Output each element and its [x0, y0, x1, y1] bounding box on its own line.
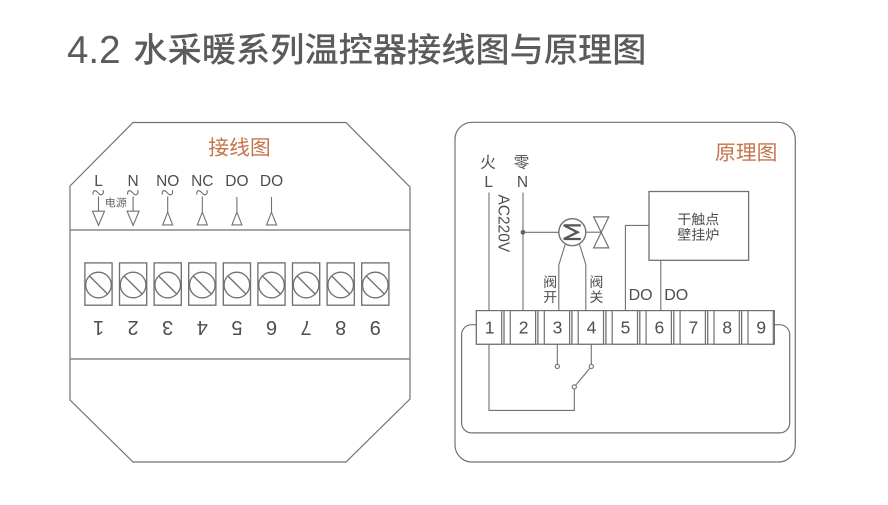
svg-text:DO: DO [664, 287, 688, 304]
svg-text:DO: DO [260, 173, 283, 190]
svg-text:N: N [517, 174, 528, 191]
svg-text:NO: NO [156, 173, 179, 190]
svg-text:8: 8 [722, 318, 732, 338]
svg-text:NC: NC [191, 173, 213, 190]
svg-text:1: 1 [485, 318, 495, 338]
svg-text:4: 4 [587, 318, 597, 338]
svg-text:8: 8 [335, 316, 346, 338]
svg-text:5: 5 [231, 316, 242, 338]
svg-text:9: 9 [370, 316, 381, 338]
svg-text:L: L [484, 174, 493, 191]
svg-text:AC220V: AC220V [494, 195, 511, 253]
svg-text:DO: DO [225, 173, 248, 190]
svg-text:DO: DO [629, 287, 653, 304]
svg-text:3: 3 [553, 318, 563, 338]
svg-text:7: 7 [301, 316, 312, 338]
svg-text:6: 6 [655, 318, 665, 338]
svg-text:2: 2 [128, 316, 139, 338]
svg-text:1: 1 [93, 316, 104, 338]
svg-text:N: N [127, 173, 138, 190]
svg-text:3: 3 [162, 316, 173, 338]
svg-text:7: 7 [689, 318, 699, 338]
svg-text:4.2: 4.2 [67, 29, 121, 72]
svg-text:4: 4 [197, 316, 208, 338]
svg-text:L: L [94, 173, 103, 190]
svg-text:5: 5 [621, 318, 631, 338]
svg-text:2: 2 [519, 318, 529, 338]
svg-text:9: 9 [756, 318, 766, 338]
svg-text:6: 6 [266, 316, 277, 338]
